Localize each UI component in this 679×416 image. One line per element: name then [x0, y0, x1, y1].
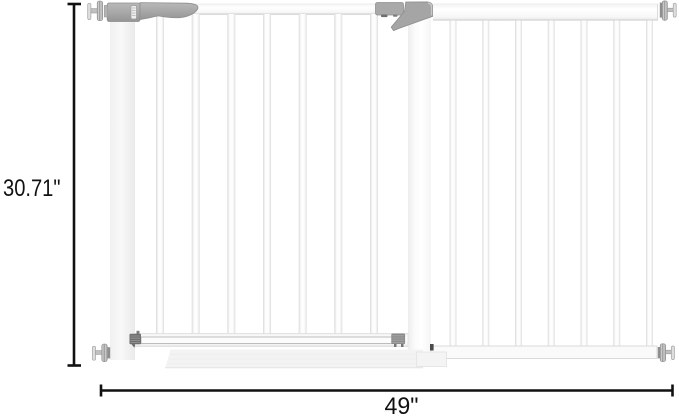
svg-text:30.71": 30.71"	[3, 175, 61, 202]
svg-text:49": 49"	[385, 393, 419, 416]
